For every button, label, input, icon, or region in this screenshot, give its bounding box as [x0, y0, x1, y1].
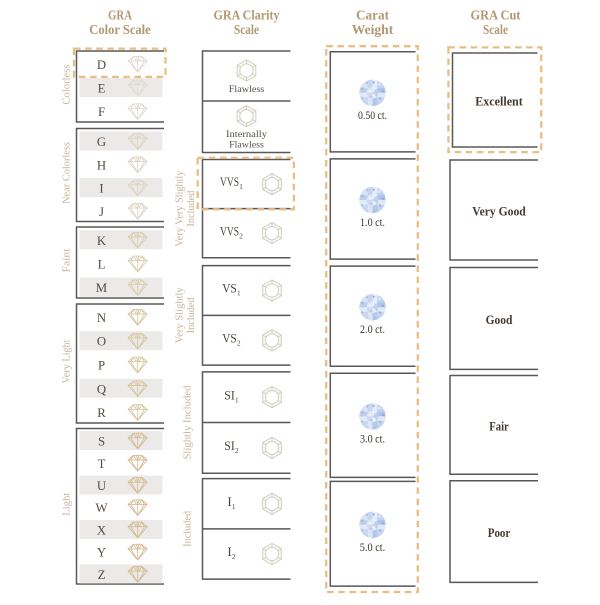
- svg-text:W: W: [95, 501, 108, 515]
- svg-text:1.0 ct.: 1.0 ct.: [360, 215, 385, 229]
- svg-text:S: S: [98, 435, 105, 449]
- svg-text:Excellent: Excellent: [475, 95, 523, 109]
- svg-text:Slightly Included: Slightly Included: [182, 385, 193, 460]
- svg-text:2: 2: [237, 339, 241, 347]
- svg-text:2: 2: [239, 232, 243, 240]
- svg-text:U: U: [97, 479, 106, 493]
- svg-text:SI: SI: [224, 388, 235, 402]
- svg-text:SI: SI: [224, 439, 235, 453]
- svg-text:E: E: [98, 82, 106, 96]
- svg-text:Light: Light: [61, 493, 72, 516]
- svg-text:Scale: Scale: [234, 22, 259, 37]
- svg-text:Near Colorless: Near Colorless: [61, 142, 72, 204]
- svg-text:2.0 ct.: 2.0 ct.: [360, 322, 385, 336]
- svg-text:Very Very Slightly: Very Very Slightly: [174, 170, 185, 247]
- svg-text:P: P: [98, 359, 105, 373]
- svg-text:2: 2: [235, 447, 239, 455]
- svg-text:Fair: Fair: [489, 420, 509, 434]
- svg-text:5.0 ct.: 5.0 ct.: [360, 540, 386, 554]
- svg-text:Flawless: Flawless: [229, 85, 265, 95]
- svg-text:M: M: [96, 281, 107, 295]
- svg-text:Carat: Carat: [356, 8, 390, 23]
- svg-text:VVS: VVS: [220, 224, 239, 238]
- svg-text:J: J: [99, 205, 104, 219]
- svg-text:F: F: [98, 105, 105, 119]
- svg-text:Flawless: Flawless: [229, 141, 264, 151]
- svg-text:GRA: GRA: [108, 8, 132, 23]
- svg-text:G: G: [97, 135, 106, 149]
- svg-text:D: D: [97, 58, 106, 72]
- svg-text:Included: Included: [182, 510, 193, 547]
- svg-text:Very Good: Very Good: [472, 205, 526, 219]
- svg-text:K: K: [97, 234, 107, 248]
- svg-text:O: O: [97, 335, 106, 349]
- svg-text:L: L: [98, 258, 106, 272]
- svg-text:Color Scale: Color Scale: [89, 22, 151, 37]
- svg-text:1: 1: [232, 503, 236, 511]
- svg-text:Internally: Internally: [226, 130, 267, 140]
- svg-text:R: R: [97, 406, 106, 420]
- svg-text:Weight: Weight: [352, 22, 394, 37]
- svg-text:0.50 ct.: 0.50 ct.: [358, 108, 387, 122]
- svg-text:2: 2: [232, 553, 236, 561]
- svg-text:1: 1: [239, 183, 243, 191]
- svg-text:Very Slightly: Very Slightly: [174, 287, 185, 344]
- svg-text:1: 1: [235, 396, 239, 404]
- svg-text:Included: Included: [186, 190, 197, 227]
- svg-text:VS: VS: [222, 331, 237, 345]
- svg-text:Faint: Faint: [61, 248, 72, 272]
- svg-text:VVS: VVS: [220, 175, 239, 189]
- svg-text:3.0 ct.: 3.0 ct.: [360, 431, 385, 445]
- svg-text:Poor: Poor: [488, 526, 511, 540]
- svg-text:GRA Clarity: GRA Clarity: [214, 8, 280, 23]
- svg-text:Colorless: Colorless: [61, 65, 72, 105]
- svg-text:X: X: [97, 524, 107, 538]
- svg-text:Good: Good: [486, 313, 513, 327]
- svg-text:H: H: [97, 158, 106, 172]
- svg-text:T: T: [98, 457, 106, 471]
- svg-text:Included: Included: [186, 297, 197, 334]
- svg-text:Z: Z: [98, 568, 106, 582]
- svg-text:VS: VS: [222, 282, 237, 296]
- svg-text:Scale: Scale: [483, 22, 508, 37]
- svg-text:GRA Cut: GRA Cut: [471, 8, 522, 23]
- svg-text:I: I: [99, 182, 103, 196]
- svg-text:N: N: [97, 311, 106, 325]
- svg-text:Q: Q: [97, 382, 107, 396]
- svg-text:1: 1: [237, 290, 241, 298]
- svg-text:Very Light: Very Light: [61, 339, 72, 383]
- svg-text:Y: Y: [97, 546, 106, 560]
